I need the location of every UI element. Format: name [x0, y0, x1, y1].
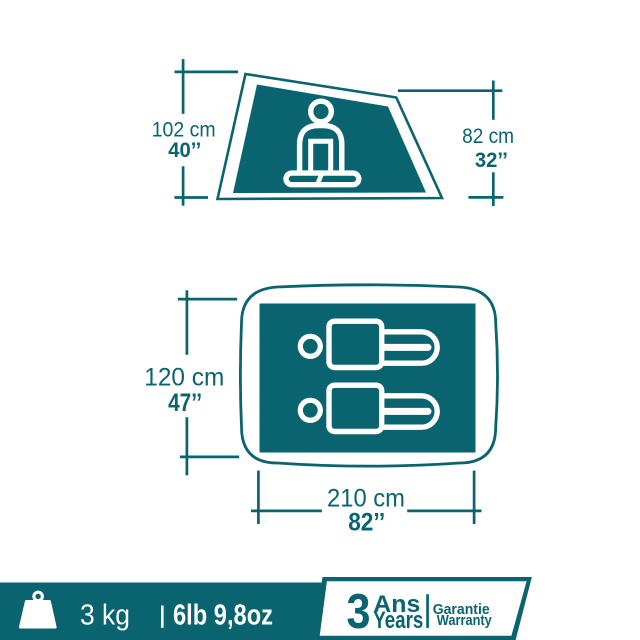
svg-text:3 kg: 3 kg [80, 599, 130, 631]
svg-text:Warranty: Warranty [437, 613, 492, 629]
svg-text:32’’: 32’’ [475, 149, 508, 172]
svg-text:3: 3 [347, 585, 371, 639]
svg-text:Years: Years [373, 607, 423, 634]
svg-text:82 cm: 82 cm [462, 125, 514, 148]
svg-text:82’’: 82’’ [348, 509, 385, 537]
svg-text:120 cm: 120 cm [144, 363, 224, 391]
svg-text:40’’: 40’’ [168, 139, 201, 162]
svg-text:102 cm: 102 cm [152, 118, 216, 141]
svg-text:6lb 9,8oz: 6lb 9,8oz [173, 599, 273, 631]
svg-text:47’’: 47’’ [168, 389, 202, 417]
